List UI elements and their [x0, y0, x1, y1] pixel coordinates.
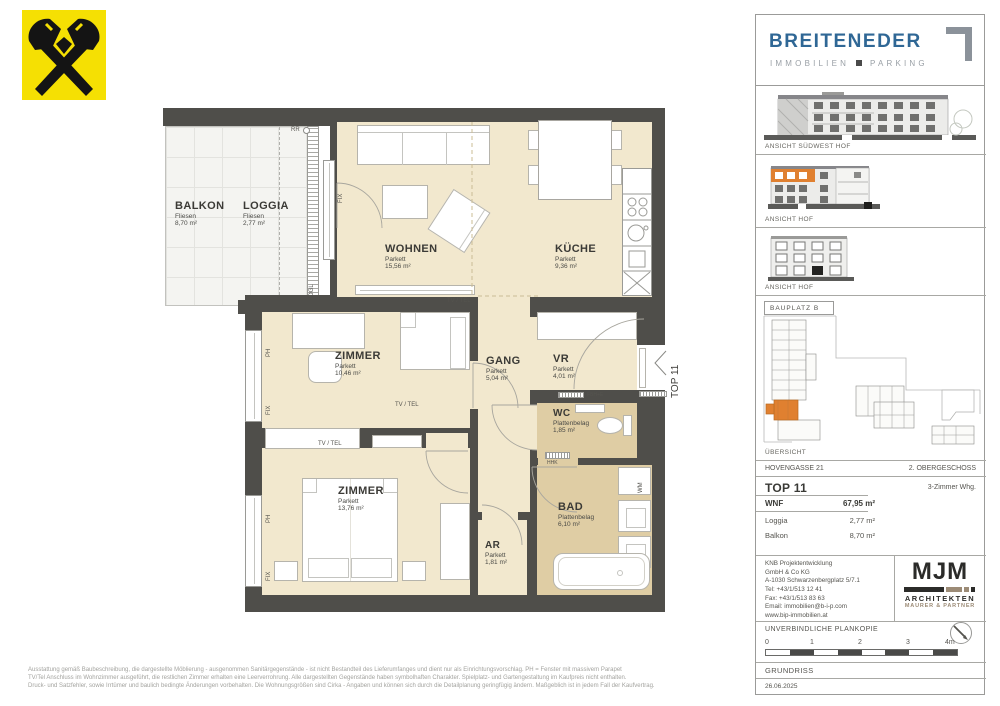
scale-bar: 0 1 2 3 4m [765, 639, 961, 659]
floorplan: RR KOGL PH FIX PH FIX FIX [160, 105, 695, 617]
metric-value: 67,95 m² [805, 499, 875, 508]
metric-label: Loggia [765, 516, 788, 525]
divider [756, 154, 986, 155]
brand-logo-box: BREITENEDER IMMOBILIEN PARKING [755, 14, 985, 86]
brand-subtitle-right: PARKING [870, 59, 928, 68]
siteplan-image [756, 302, 984, 448]
scale-bar-segments [765, 649, 958, 656]
divider [756, 495, 868, 496]
divider [756, 511, 868, 512]
divider [756, 662, 986, 663]
brand-square-icon [856, 60, 862, 66]
architect-bar-icon [904, 587, 976, 592]
metric-row-wnf: WNF 67,95 m² [765, 499, 875, 508]
scale-tick: 3 [906, 639, 910, 646]
door-swings-overlay [160, 105, 695, 617]
brand-subtitle: IMMOBILIEN PARKING [770, 59, 928, 68]
elevation-hof1-image [768, 162, 886, 212]
metric-label: WNF [765, 499, 783, 508]
metric-row-loggia: Loggia 2,77 m² [765, 516, 875, 525]
scale-tick: 4m [945, 639, 955, 646]
date-label: 26.06.2025 [765, 683, 798, 690]
room-label-kueche: KÜCHEParkett9,36 m² [555, 243, 596, 271]
contact-line: GmbH & Co KG [765, 569, 893, 578]
unit-type: 3-Zimmer Whg. [928, 484, 976, 491]
architect-logo: MJM ARCHITEKTEN MAURER & PARTNER [895, 560, 985, 609]
divider [756, 678, 986, 679]
contact-line: Fax: +43/1/513 83 63 [765, 595, 893, 604]
contact-line: A-1030 Schwarzenbergplatz 5/7.1 [765, 577, 893, 586]
divider [756, 460, 986, 461]
room-label-zimmer1: ZIMMERParkett10,46 m² [335, 350, 381, 378]
elevation-suedwest-label: ANSICHT SÜDWEST HOF [765, 143, 851, 150]
metric-row-balkon: Balkon 8,70 m² [765, 531, 875, 540]
brand-corner-icon [946, 27, 972, 61]
metric-label: Balkon [765, 531, 788, 540]
disclaimer-line: Ausstattung gemäß Baubeschreibung, die d… [28, 666, 752, 674]
divider [756, 555, 986, 556]
plan-sheet: RR KOGL PH FIX PH FIX FIX [0, 0, 1000, 706]
brand-name: BREITENEDER [769, 31, 922, 53]
metric-value: 2,77 m² [805, 516, 875, 525]
room-label-gang: GANGParkett5,04 m² [486, 355, 521, 383]
elevation-hof1-label: ANSICHT HOF [765, 216, 813, 223]
divider [756, 476, 986, 477]
contact-line: Tel: +43/1/513 12 41 [765, 586, 893, 595]
disclaimer-line: TV/Tel Anschluss im Wohnzimmer ausgeführ… [28, 674, 752, 682]
unit-marker-top11: TOP 11 [670, 365, 681, 398]
contact-block: KNB Projektentwicklung GmbH & Co KG A-10… [765, 560, 893, 621]
room-label-balkon: BALKONFliesen8,70 m² [175, 200, 224, 228]
room-label-loggia: LOGGIAFliesen2,77 m² [243, 200, 289, 228]
room-label-vr: VRParkett4,01 m² [553, 353, 575, 381]
raiffeisen-logo-icon [22, 10, 106, 100]
uebersicht-label: ÜBERSICHT [765, 449, 806, 456]
elevation-hof2-image [768, 233, 860, 283]
room-label-zimmer2: ZIMMERParkett13,76 m² [338, 485, 384, 513]
street-label: HOVENGASSE 21 [765, 465, 824, 472]
drawing-type-label: GRUNDRISS [765, 666, 814, 675]
room-label-wohnen: WOHNENParkett15,56 m² [385, 243, 438, 271]
architect-name: MJM [895, 560, 985, 584]
architect-line1: ARCHITEKTEN [895, 594, 985, 603]
scale-tick: 0 [765, 639, 769, 646]
disclaimer-line: Druck- und Satzfehler, sowie Irrtümer un… [28, 682, 752, 690]
elevation-hof2-label: ANSICHT HOF [765, 284, 813, 291]
plankopie-label: UNVERBINDLICHE PLANKOPIE [765, 626, 878, 633]
divider [756, 227, 986, 228]
contact-line: KNB Projektentwicklung [765, 560, 893, 569]
disclaimer: Ausstattung gemäß Baubeschreibung, die d… [28, 666, 752, 690]
architect-line2: MAURER & PARTNER [895, 603, 985, 609]
unit-title: TOP 11 [765, 481, 807, 495]
room-label-bad: BADPlattenbelag6,10 m² [558, 501, 594, 529]
brand-subtitle-left: IMMOBILIEN [770, 59, 849, 68]
floor-label: 2. OBERGESCHOSS [909, 465, 976, 472]
scale-tick: 1 [810, 639, 814, 646]
scale-tick: 2 [858, 639, 862, 646]
contact-line: Email: immobilien@b-i-p.com [765, 603, 893, 612]
elevation-suedwest-image [764, 91, 976, 143]
contact-line: www.bip-immobilien.at [765, 612, 893, 621]
metric-value: 8,70 m² [805, 531, 875, 540]
divider [756, 295, 986, 296]
sidebar: ANSICHT SÜDWEST HOF ANSICHT HOF [755, 86, 985, 695]
room-label-wc: WCPlattenbelag1,85 m² [553, 408, 589, 434]
room-label-ar: ARParkett1,81 m² [485, 540, 507, 566]
